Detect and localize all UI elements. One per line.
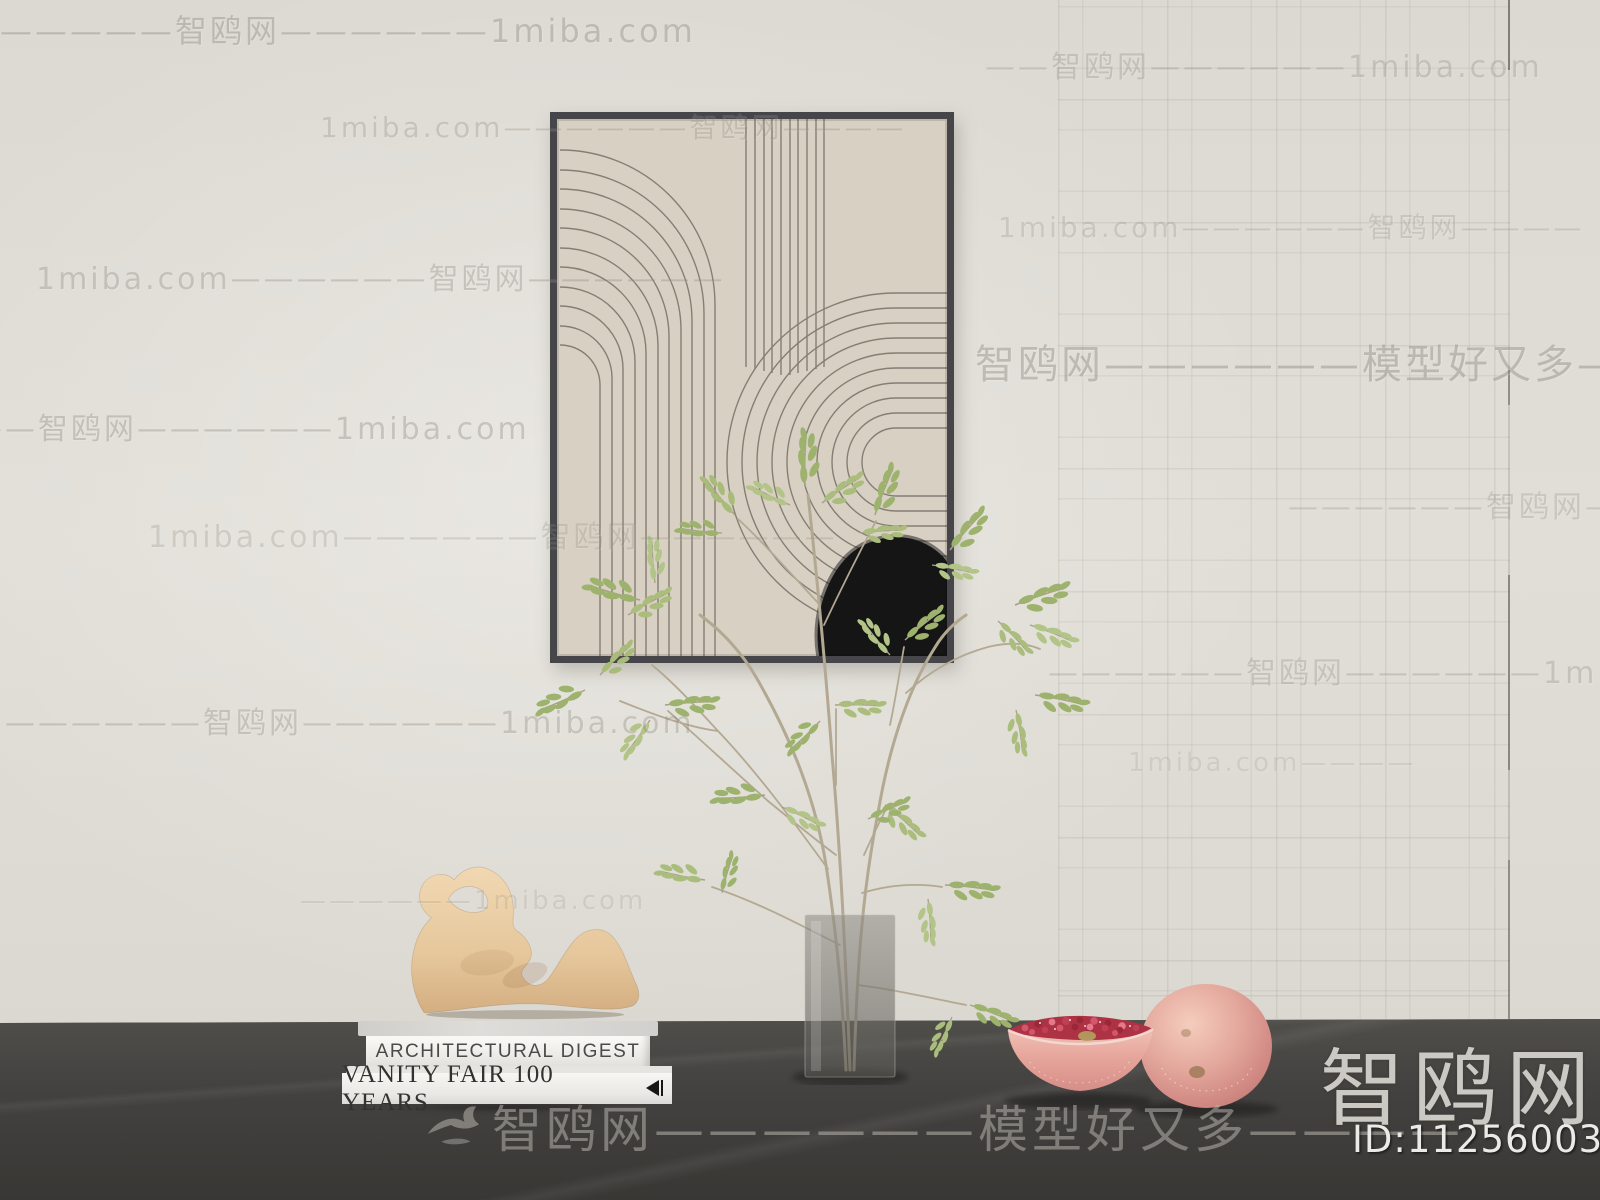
half-pomegranate: [1008, 1016, 1153, 1091]
vase-reflection: [805, 1077, 895, 1085]
fruit-shadow-2: [1004, 1093, 1152, 1109]
book-vanity-fair: VANITY FAIR 100 YEARS: [342, 1073, 672, 1104]
reclining-figure-sculpture: [390, 862, 642, 1020]
whole-pomegranate: [1140, 984, 1272, 1108]
book-top-face: [358, 1021, 658, 1036]
paneled-wall: [1058, 0, 1510, 1019]
scene: ARCHITECTURAL DIGEST VANITY FAIR 100 YEA…: [0, 0, 1600, 1200]
book-triangle-icon: [646, 1080, 659, 1096]
vase-highlight: [811, 921, 821, 1071]
book-triangle-bar-icon: [661, 1080, 664, 1096]
wall-corner-line: [1508, 0, 1510, 1019]
pomegranates: [990, 970, 1290, 1120]
book-title-bottom: VANITY FAIR 100 YEARS: [342, 1061, 646, 1117]
pomegranate-pith: [1078, 1031, 1096, 1041]
sculpture-contact-shadow: [426, 1010, 624, 1019]
